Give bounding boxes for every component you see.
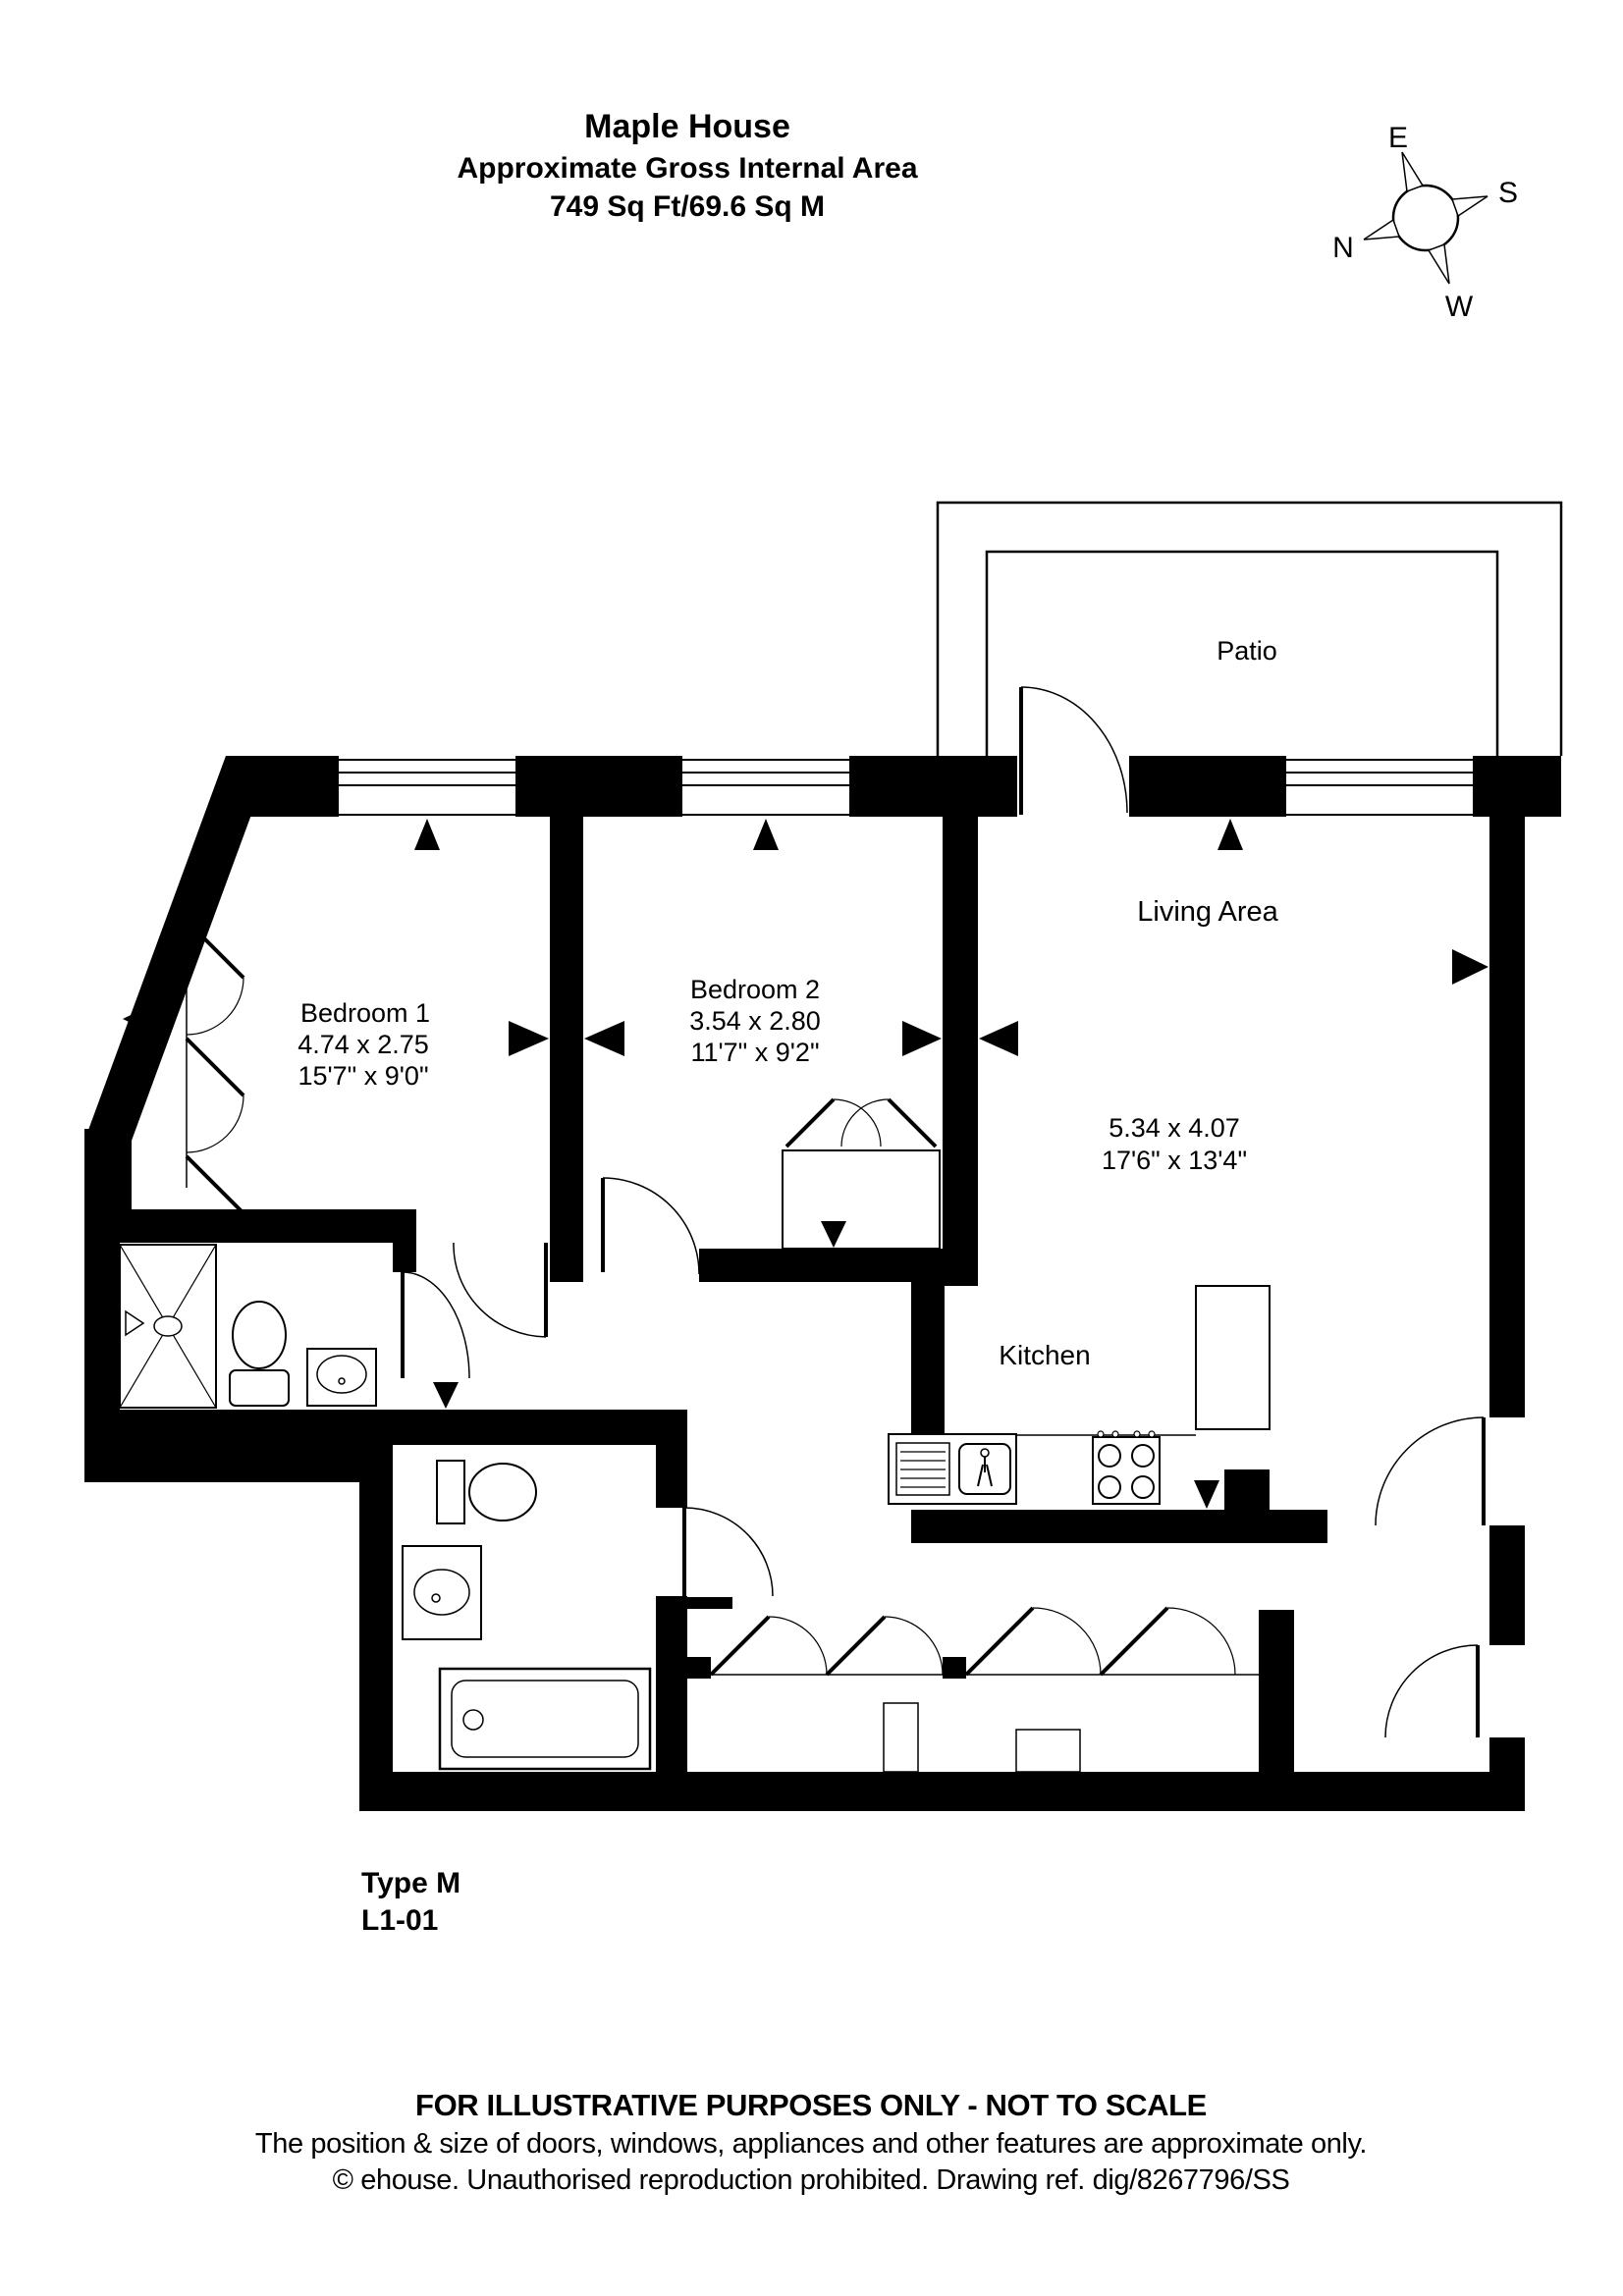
door-entrance (1385, 1645, 1478, 1737)
wall-right-2 (1489, 1525, 1525, 1645)
marker-window2 (753, 819, 779, 850)
wall-top-3 (849, 756, 1017, 817)
marker-kitchen (1194, 1480, 1219, 1509)
hall-closets (687, 1608, 1259, 1772)
shower-symbol (120, 1245, 216, 1408)
compass-arm-s (1452, 196, 1488, 216)
wall-bathroom-left (359, 1443, 393, 1811)
wall-outer-step (84, 1445, 363, 1482)
bathroom-fixtures (403, 1461, 650, 1769)
marker-hall (433, 1382, 459, 1409)
compass-icon: E S N W (1332, 122, 1518, 323)
wardrobe-bedroom2 (783, 1099, 940, 1249)
door-bedroom1 (454, 1243, 546, 1337)
kitchen-fixtures (889, 1286, 1270, 1504)
kitchen-appliance-block (1224, 1469, 1270, 1510)
room-dim-bedroom2-metric: 3.54 x 2.80 (689, 1006, 821, 1036)
door-bathroom (684, 1508, 773, 1596)
wall-top-4 (1129, 756, 1286, 817)
footer-disclaimer-1: FOR ILLUSTRATIVE PURPOSES ONLY - NOT TO … (415, 2088, 1207, 2122)
door-patio (1021, 687, 1127, 815)
room-label-bedroom1: Bedroom 1 (300, 998, 430, 1028)
wall-bottom (359, 1772, 1525, 1811)
door-bedroom2 (603, 1178, 699, 1274)
door-ensuite (403, 1272, 469, 1378)
sink-symbol (889, 1434, 1016, 1504)
marker-living-right (1452, 949, 1488, 985)
wall-bedroom1-bottom (84, 1209, 416, 1243)
basin-symbol-bathroom (403, 1546, 481, 1639)
marker-bed2-bottom (821, 1221, 846, 1248)
wall-hall-kitchen (911, 1282, 945, 1435)
basin-symbol-ensuite (307, 1349, 376, 1406)
compass-label-s: S (1498, 177, 1518, 209)
room-dim-living-imperial: 17'6" x 13'4" (1102, 1146, 1247, 1175)
ensuite-fixtures (120, 1245, 376, 1408)
closet-shelf-2 (1016, 1730, 1080, 1772)
marker-living-left (979, 1021, 1018, 1056)
wall-diagonal (84, 756, 273, 1141)
wall-kitchen-bottom (911, 1510, 1327, 1543)
closet-top-bar (687, 1597, 732, 1609)
door-living-kitchen (1376, 1417, 1484, 1525)
room-dim-bedroom2-imperial: 11'7" x 9'2" (690, 1038, 819, 1067)
footer: FOR ILLUSTRATIVE PURPOSES ONLY - NOT TO … (255, 2088, 1367, 2196)
compass-arm-e (1402, 152, 1423, 191)
room-dim-bedroom1-metric: 4.74 x 2.75 (298, 1030, 429, 1059)
title-block: Maple House Approximate Gross Internal A… (457, 108, 917, 223)
bathtub-symbol (440, 1669, 650, 1769)
marker-living-top (1217, 819, 1243, 850)
wall-right-1 (1489, 817, 1525, 1417)
room-dim-living-metric: 5.34 x 4.07 (1109, 1113, 1240, 1143)
hob-symbol (1093, 1431, 1160, 1504)
window-living (1286, 760, 1473, 815)
wall-ensuite-stub (393, 1243, 416, 1272)
wall-bedroom2-bottom (699, 1249, 978, 1282)
compass-label-e: E (1388, 122, 1408, 154)
wall-right-3 (1489, 1737, 1525, 1811)
footer-copyright: © ehouse. Unauthorised reproduction proh… (333, 2164, 1290, 2196)
toilet-symbol-ensuite (230, 1302, 289, 1406)
marker-bed2-left (584, 1021, 624, 1056)
compass-arm-w (1429, 244, 1449, 284)
closet-shelf-1 (884, 1703, 918, 1772)
marker-window1 (414, 819, 440, 850)
page-area: 749 Sq Ft/69.6 Sq M (550, 190, 825, 223)
floorplan-page: Maple House Approximate Gross Internal A… (0, 0, 1623, 2296)
kitchen-counter-column (1196, 1286, 1270, 1429)
wall-bathroom-right-2 (656, 1596, 687, 1811)
wall-top-5 (1473, 756, 1561, 817)
page-subtitle: Approximate Gross Internal Area (457, 152, 917, 185)
footer-disclaimer-2: The position & size of doors, windows, a… (255, 2128, 1367, 2160)
bifold-doors-closet2 (966, 1608, 1235, 1675)
wall-bathroom-right-1 (656, 1445, 687, 1508)
wall-ensuite-left (84, 1243, 120, 1415)
room-label-bedroom2: Bedroom 2 (690, 975, 820, 1004)
window-bedroom1 (339, 760, 515, 815)
room-label-living: Living Area (1137, 896, 1278, 928)
unit-type: Type M (361, 1867, 460, 1899)
patio-outline (938, 503, 1561, 756)
unit-label: Type M L1-01 (361, 1867, 460, 1937)
wall-top-2 (515, 756, 682, 817)
compass-label-n: N (1332, 232, 1354, 264)
room-dim-bedroom1-imperial: 15'7" x 9'0" (298, 1061, 428, 1091)
compass-label-w: W (1445, 291, 1474, 323)
floorplan-drawing: Maple House Approximate Gross Internal A… (0, 0, 1623, 2296)
wall-bed2-living (943, 817, 978, 1286)
wall-ensuite-bottom (84, 1410, 687, 1445)
compass-arm-n (1364, 220, 1399, 240)
wall-bed1-bed2 (550, 817, 583, 1282)
compass-circle (1393, 186, 1458, 250)
page-title: Maple House (584, 108, 790, 145)
room-label-patio: Patio (1217, 636, 1277, 666)
window-bedroom2 (682, 760, 849, 815)
unit-number: L1-01 (361, 1904, 438, 1937)
marker-bed2-right (902, 1021, 942, 1056)
bifold-doors-closet1 (711, 1617, 943, 1675)
toilet-symbol-bathroom (437, 1461, 536, 1523)
wall-closet-right (1259, 1610, 1294, 1772)
room-label-kitchen: Kitchen (999, 1340, 1090, 1370)
marker-bed1-right (509, 1021, 549, 1056)
